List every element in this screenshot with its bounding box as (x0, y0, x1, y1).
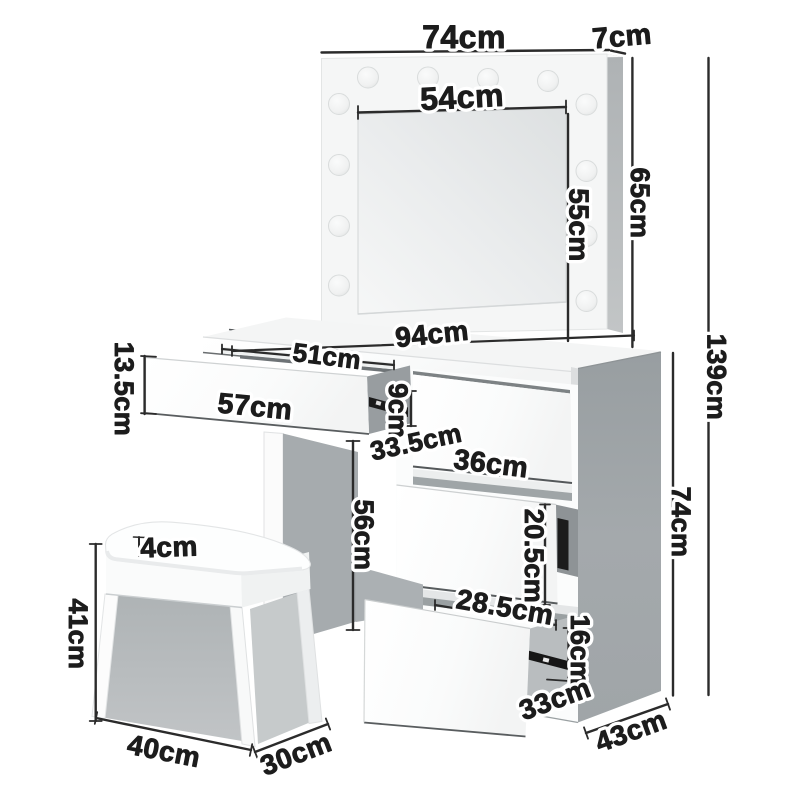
svg-text:74cm: 74cm (666, 486, 696, 557)
svg-text:55cm: 55cm (564, 188, 595, 262)
svg-text:4cm: 4cm (140, 531, 199, 564)
svg-text:13.5cm: 13.5cm (109, 342, 139, 437)
svg-text:20.5cm: 20.5cm (519, 509, 549, 604)
svg-text:7cm: 7cm (591, 18, 653, 55)
svg-text:139cm: 139cm (702, 334, 732, 421)
svg-text:74cm: 74cm (422, 19, 506, 55)
svg-text:41cm: 41cm (63, 598, 93, 669)
svg-text:54cm: 54cm (419, 77, 505, 117)
svg-text:56cm: 56cm (349, 499, 379, 570)
svg-text:65cm: 65cm (625, 167, 655, 238)
